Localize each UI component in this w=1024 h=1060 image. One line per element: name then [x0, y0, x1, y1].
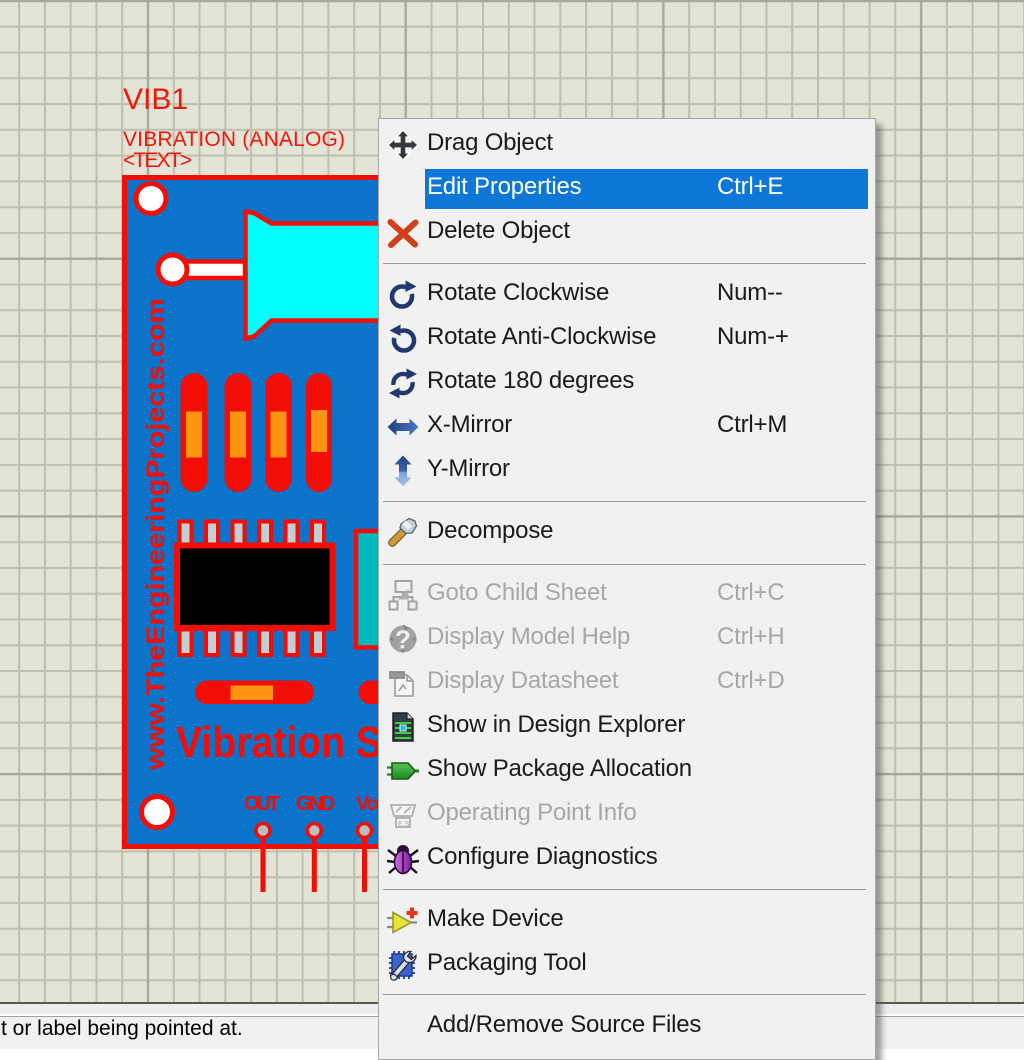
- svg-text:VIBRATION (ANALOG): VIBRATION (ANALOG): [123, 128, 345, 151]
- svg-text:VIB1: VIB1: [123, 83, 188, 116]
- svg-text:www.TheEngineeringProjects.com: www.TheEngineeringProjects.com: [142, 298, 170, 771]
- svg-text:OUT: OUT: [244, 793, 280, 815]
- svg-text:Vibration S: Vibration S: [176, 718, 382, 767]
- svg-text:?: ?: [395, 625, 411, 655]
- svg-text:<TEXT>: <TEXT>: [123, 149, 192, 172]
- svg-text:GND: GND: [296, 793, 335, 815]
- svg-text:E S: E S: [398, 821, 410, 828]
